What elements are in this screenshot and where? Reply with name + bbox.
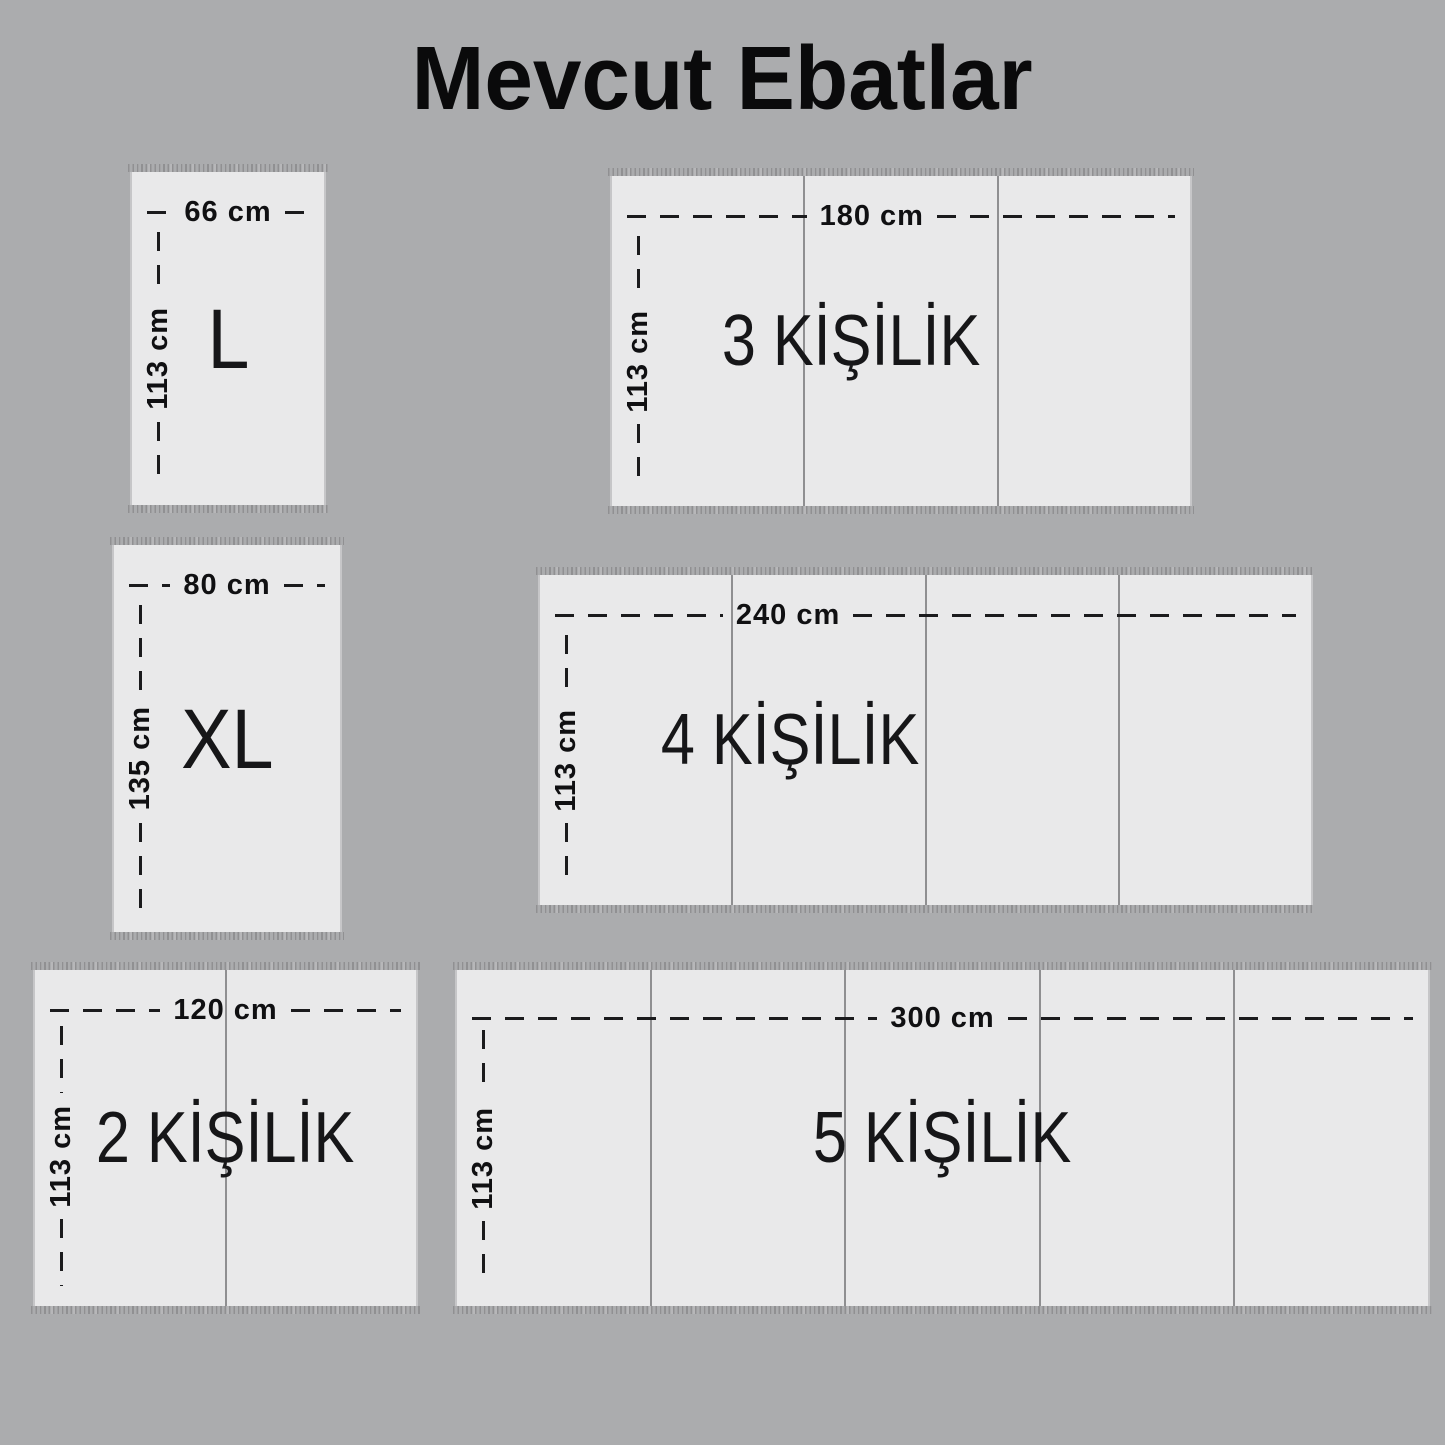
dash-line-bottom [157,422,160,485]
dash-line-left [627,215,807,218]
width-label: 240 cm [736,601,840,630]
width-dimension-line: 80 cm [129,569,325,601]
height-dimension-line: 113 cm [140,232,176,485]
dash-line-right [937,215,1175,218]
height-dimension-line: 113 cm [43,1026,79,1286]
height-label: 113 cm [469,1107,498,1210]
dash-line-top [60,1026,63,1093]
height-label: 113 cm [624,310,653,413]
width-dimension-line: 240 cm [555,599,1296,631]
width-dimension-line: 120 cm [50,994,401,1026]
dash-line-left [472,1017,877,1020]
dash-line-bottom [60,1219,63,1286]
dash-line-right [285,211,309,214]
dash-line-left [147,211,171,214]
width-label: 80 cm [183,571,270,600]
height-dimension-line: 113 cm [548,635,584,885]
width-dimension-line: 300 cm [472,1002,1413,1034]
dash-line-right [291,1009,401,1012]
size-panel-3-seat: 180 cm 113 cm 3 KİŞİLİK [610,176,1192,506]
dash-line-top [482,1030,485,1095]
width-label: 66 cm [184,198,271,227]
dash-line-left [555,614,723,617]
height-dimension-line: 135 cm [122,605,158,912]
width-label: 180 cm [820,202,924,231]
width-dimension-line: 180 cm [627,200,1175,232]
dash-line-right [284,584,325,587]
width-label: 120 cm [173,996,277,1025]
size-panel-l: 66 cm 113 cm L [130,172,326,505]
size-panel-xl: 80 cm 135 cm XL [112,545,342,932]
dash-line-bottom [637,424,640,486]
size-panel-5-seat: 300 cm 113 cm 5 KİŞİLİK [455,970,1430,1306]
dash-line-bottom [139,823,142,912]
height-dimension-line: 113 cm [465,1030,501,1286]
dash-line-left [50,1009,160,1012]
dash-line-bottom [565,823,568,885]
size-panel-2-seat: 120 cm 113 cm 2 KİŞİLİK [33,970,418,1306]
dash-line-top [565,635,568,697]
height-label: 113 cm [552,709,581,812]
page-title-text: Mevcut Ebatlar [412,28,1033,131]
height-label: 113 cm [144,307,173,410]
width-dimension-line: 66 cm [147,196,309,228]
dash-line-right [853,614,1296,617]
width-label: 300 cm [890,1004,994,1033]
height-label: 113 cm [47,1105,76,1208]
dash-line-top [637,236,640,298]
dash-line-top [139,605,142,694]
size-panel-4-seat: 240 cm 113 cm 4 KİŞİLİK [538,575,1313,905]
height-label: 135 cm [126,706,155,810]
height-dimension-line: 113 cm [620,236,656,486]
dash-line-left [129,584,170,587]
dash-line-top [157,232,160,295]
dash-line-right [1008,1017,1413,1020]
page-title: Mevcut Ebatlar [0,28,1445,131]
dash-line-bottom [482,1221,485,1286]
